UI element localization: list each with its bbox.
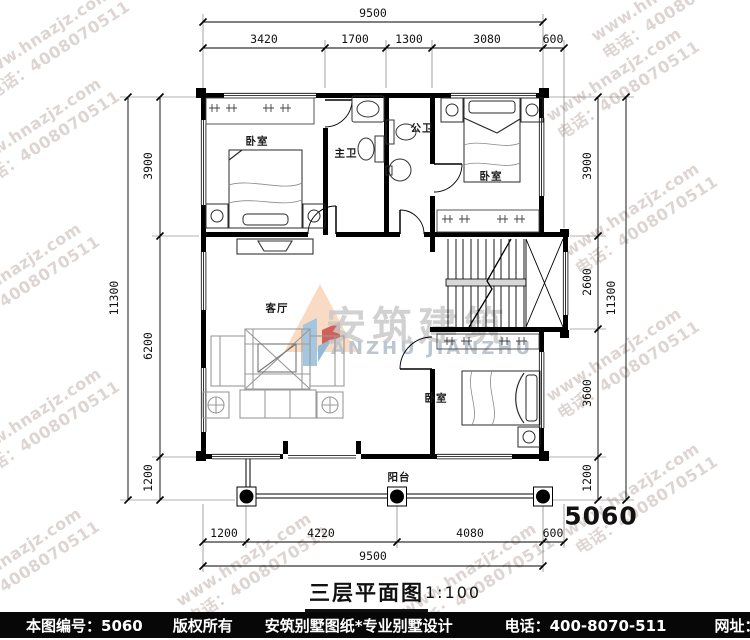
dim-right-total: 11300 <box>604 281 618 316</box>
dim-bottom-seg-1: 1200 <box>210 526 238 540</box>
dim-top-seg-4: 3080 <box>473 32 501 46</box>
dim-left-seg-1: 3900 <box>141 152 155 180</box>
dim-left-seg-2: 6200 <box>141 332 155 360</box>
dim-bottom-seg-3: 4080 <box>456 526 484 540</box>
plan-title: 三层平面图 <box>309 581 424 605</box>
footer-copyright: 版权所有 <box>173 615 233 636</box>
dim-right-seg-3: 3600 <box>580 379 594 407</box>
dim-top-seg-5: 600 <box>543 32 564 46</box>
floor-plan-drawing <box>0 0 750 640</box>
dim-right-seg-4: 1200 <box>580 464 594 492</box>
dim-bottom-seg-2: 4220 <box>307 526 335 540</box>
dim-bottom-seg-4: 600 <box>543 526 564 540</box>
dim-left-total: 11300 <box>107 281 121 316</box>
room-label-bedroom-tr: 卧室 <box>480 169 503 184</box>
dim-right-seg-1: 3900 <box>580 152 594 180</box>
footer-company: 安筑别墅图纸*专业别墅设计 <box>265 615 453 636</box>
room-label-balcony: 阳台 <box>388 470 411 485</box>
footer-bar: 本图编号：5060 版权所有 安筑别墅图纸*专业别墅设计 电话：400-8070… <box>0 612 750 638</box>
staircase <box>446 239 563 327</box>
dim-top-seg-1: 3420 <box>250 32 278 46</box>
room-label-master-bath: 主卫 <box>335 146 358 161</box>
footer-phone: 电话：400-8070-511 <box>505 615 667 636</box>
drawing-number: 5060 <box>564 502 638 531</box>
footer-website: 网址：www.hnazjz.com <box>714 615 750 636</box>
dimension-ticks <box>125 19 630 570</box>
room-label-bedroom-br: 卧室 <box>425 391 448 406</box>
floor-plan-sheet: www.hnazjz.com电话：4008070511 www.hnazjz.c… <box>0 0 750 640</box>
dim-right-seg-2: 2600 <box>580 268 594 296</box>
balcony-door <box>283 441 361 460</box>
plan-scale: 1:100 <box>425 583 481 602</box>
room-label-public-bath: 公卫 <box>411 121 434 136</box>
dim-top-seg-3: 1300 <box>395 32 423 46</box>
footer-drawing-number: 本图编号：5060 <box>26 615 143 636</box>
plan-title-underline: 三层平面图 <box>305 577 428 612</box>
dim-top-total: 9500 <box>359 6 387 20</box>
dim-bottom-total: 9500 <box>359 549 387 563</box>
dim-top-seg-2: 1700 <box>341 32 369 46</box>
room-label-bedroom-tl: 卧室 <box>246 134 269 149</box>
dim-left-seg-3: 1200 <box>141 464 155 492</box>
sofa-set <box>203 239 344 418</box>
room-label-living: 客厅 <box>266 301 289 316</box>
